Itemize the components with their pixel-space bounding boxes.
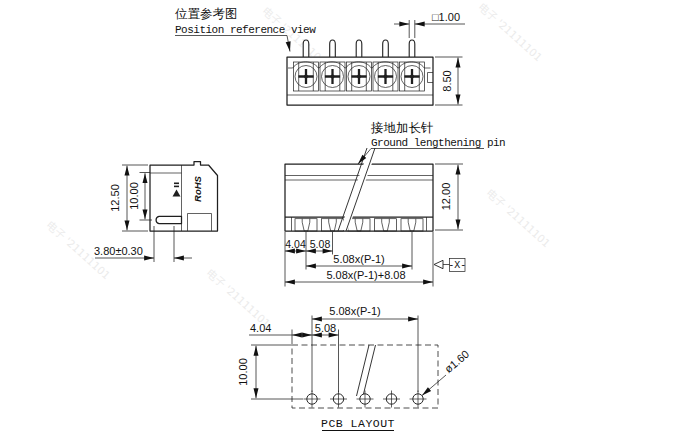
pcb-break-lines: [357, 345, 377, 396]
top-pin: [356, 40, 362, 58]
dim-body-height-label: 8.50: [441, 70, 453, 91]
pcb-hole: [383, 391, 400, 408]
dim-pin-offset: 10.00: [128, 173, 153, 221]
dim-body-height: 8.50: [435, 57, 463, 105]
datum-x: -X-: [434, 259, 466, 272]
pcb-hole: [304, 391, 321, 408]
pcb-dim-hole-dia-label: ø1.60: [442, 348, 471, 375]
top-view-label-cn: 位置参考图: [175, 6, 238, 21]
top-pin: [303, 40, 309, 58]
pcb-hole: [410, 391, 427, 408]
pcb-layout-title: PCB LAYOUT: [321, 417, 395, 430]
ground-pin-label-cn: 接地加长针: [370, 120, 434, 135]
dim-pin-square: □1.00: [394, 11, 465, 39]
dim-pin-span-label: 5.08x(P-1): [333, 253, 384, 265]
watermark-text: 电子 '21111101: [477, 1, 545, 64]
watermark-text: 电子 '21111101: [485, 187, 553, 250]
top-view-label-en: Position reference view: [175, 24, 316, 36]
pcb-dim-10-00-label: 10.00: [237, 358, 249, 386]
top-pin: [330, 40, 336, 58]
dim-pin-offset-label: 10.00: [128, 182, 140, 210]
dim-total-width-label: 5.08x(P-1)+8.08: [326, 269, 405, 281]
technical-drawing: 电子 '21111101 电子 '21111101 电子 '21111101 电…: [0, 0, 680, 440]
watermark-text: 电子 '21111101: [205, 267, 273, 330]
pcb-dim-4-04-label: 4.04: [250, 322, 271, 334]
dim-pin-length-label: 3.80±0.30: [94, 245, 143, 257]
pcb-layout: 5.08x(P-1) 4.04 5.08 10.00 ø1.60 PCB LAY…: [237, 305, 472, 431]
dim-4-04-label: 4.04: [285, 238, 306, 250]
datum-x-label: -X-: [448, 260, 466, 271]
top-pin: [409, 40, 415, 58]
pcb-hole: [330, 391, 347, 408]
dim-total-height-label: 12.50: [109, 184, 121, 212]
pcb-dim-span-label: 5.08x(P-1): [329, 305, 380, 317]
ground-pin-label-en: Ground lengthening pin: [371, 137, 505, 149]
side-view-pin: [156, 216, 181, 223]
front-view: 接地加长针 Ground lengthening pin 12.00 4.04 …: [285, 120, 505, 287]
drawing-canvas: 电子 '21111101 电子 '21111101 电子 '21111101 电…: [0, 0, 680, 440]
leader-hole-diameter: [422, 375, 446, 396]
top-pin: [383, 40, 389, 58]
rohs-marking: RoHS: [192, 175, 203, 202]
dim-5-08-label: 5.08: [310, 238, 331, 250]
dim-pin-square-label: □1.00: [432, 11, 460, 23]
pcb-dim-5-08-label: 5.08: [315, 322, 336, 334]
dim-front-height-label: 12.00: [440, 183, 452, 211]
dim-front-height: 12.00: [435, 164, 463, 230]
side-view: RoHS 12.50 10.00 3.80±0.30: [94, 162, 218, 263]
dim-front-widths: 4.04 5.08 5.08x(P-1) 5.08x(P-1)+8.08: [285, 232, 433, 287]
